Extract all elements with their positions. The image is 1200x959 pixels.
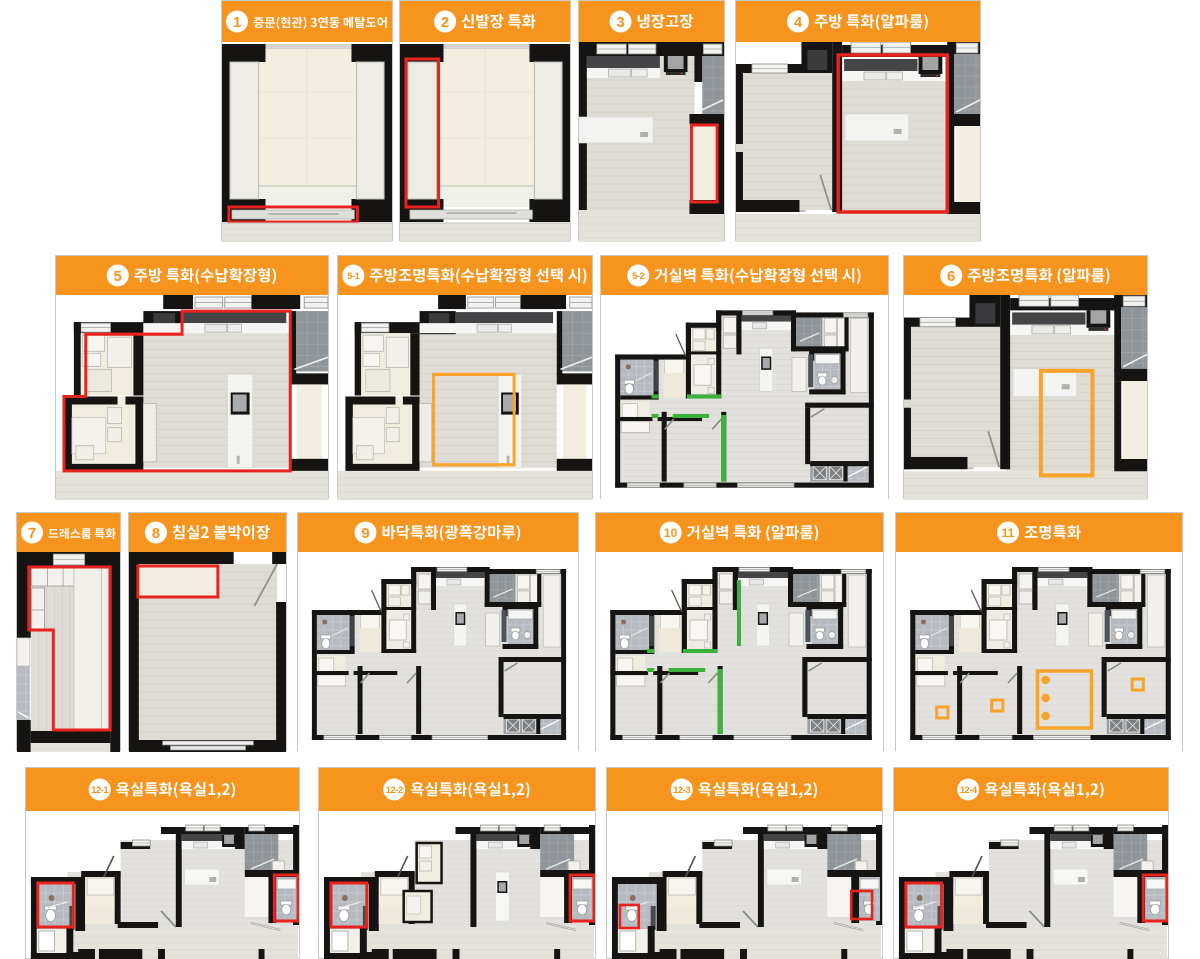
svg-text:9: 9	[361, 525, 369, 542]
svg-text:11: 11	[1002, 526, 1015, 540]
svg-text:12-2: 12-2	[386, 785, 403, 796]
svg-text:8: 8	[152, 525, 160, 542]
svg-text:1: 1	[233, 14, 241, 31]
svg-text:12-4: 12-4	[960, 785, 978, 796]
svg-text:6: 6	[947, 268, 955, 285]
svg-text:2: 2	[441, 14, 449, 31]
svg-text:5-1: 5-1	[347, 271, 360, 282]
svg-text:12-1: 12-1	[91, 785, 109, 796]
svg-text:7: 7	[28, 525, 36, 542]
svg-text:5-2: 5-2	[632, 271, 644, 282]
svg-text:3: 3	[616, 14, 624, 31]
svg-text:5: 5	[114, 268, 122, 285]
svg-text:10: 10	[664, 526, 678, 540]
svg-text:4: 4	[794, 14, 803, 31]
svg-text:12-3: 12-3	[673, 785, 690, 796]
